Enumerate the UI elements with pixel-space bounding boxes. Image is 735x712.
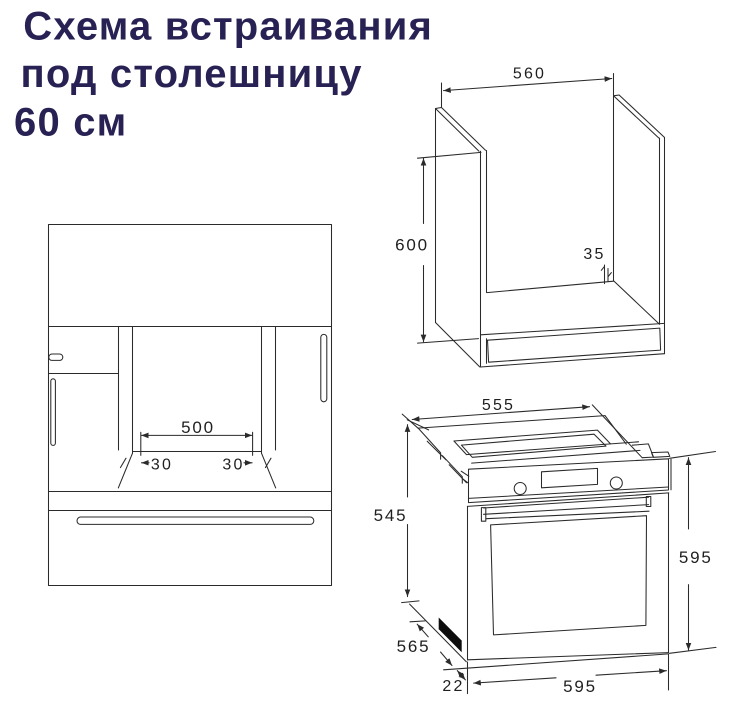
svg-text:30: 30 [222, 456, 244, 473]
svg-text:60 см: 60 см [14, 101, 127, 145]
svg-text:под столешницу: под столешницу [21, 52, 363, 96]
svg-text:30: 30 [151, 456, 173, 473]
svg-text:35: 35 [583, 246, 605, 263]
svg-text:560: 560 [513, 65, 546, 82]
svg-text:600: 600 [395, 235, 429, 254]
svg-text:595: 595 [679, 548, 713, 567]
svg-text:Схема встраивания: Схема встраивания [23, 5, 433, 49]
svg-text:565: 565 [397, 637, 431, 656]
svg-text:555: 555 [482, 397, 515, 414]
svg-text:595: 595 [563, 677, 597, 696]
svg-text:22: 22 [442, 678, 464, 695]
svg-text:545: 545 [374, 506, 408, 525]
svg-text:500: 500 [181, 418, 215, 437]
